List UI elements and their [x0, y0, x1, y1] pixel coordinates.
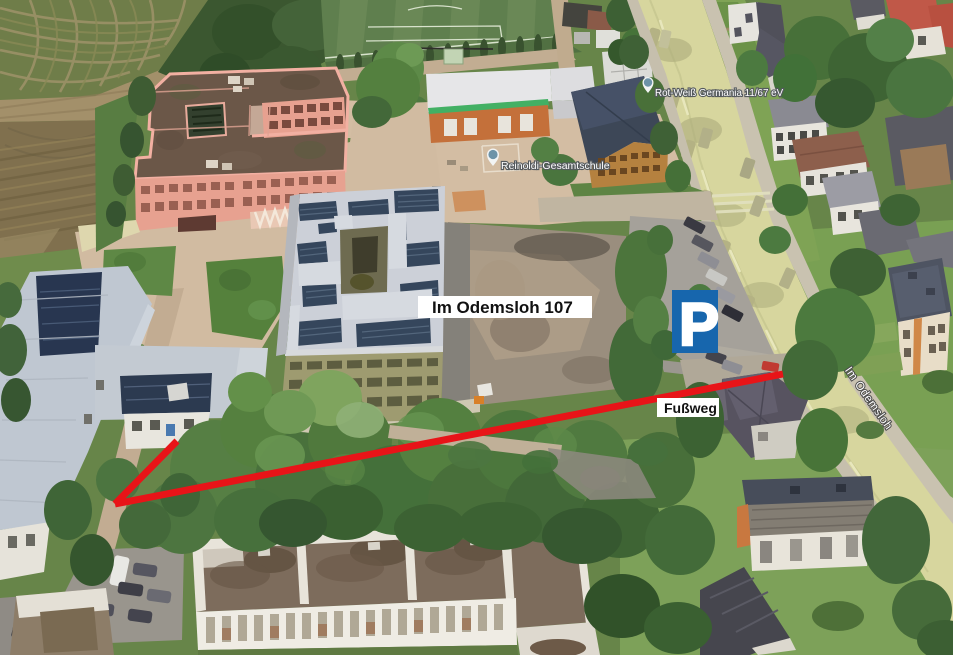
- svg-text:Im Odemsloh 107: Im Odemsloh 107: [432, 298, 573, 317]
- svg-text:P: P: [679, 291, 719, 358]
- svg-text:Fußweg: Fußweg: [664, 400, 717, 416]
- svg-text:Reinoldi-Gesamtschule: Reinoldi-Gesamtschule: [501, 160, 610, 172]
- svg-text:Rot-Weiß Germania 11/67 eV: Rot-Weiß Germania 11/67 eV: [655, 88, 784, 99]
